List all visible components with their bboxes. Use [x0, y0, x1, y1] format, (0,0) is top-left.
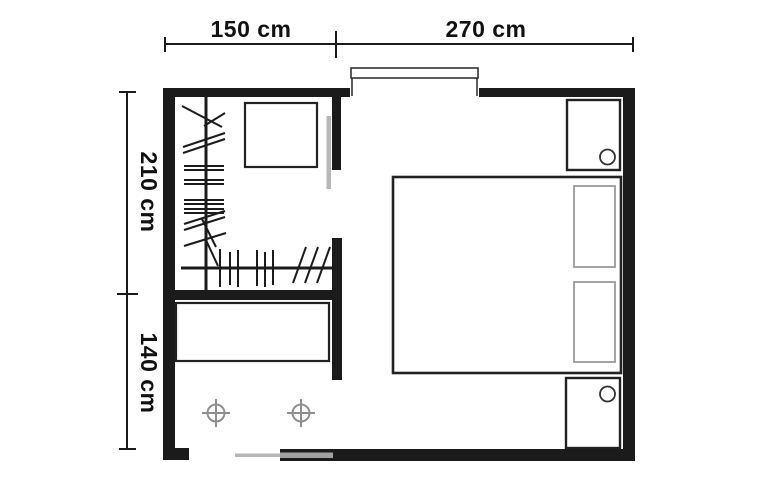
dimension-top: 150 cm 270 cm — [165, 16, 633, 58]
dimension-left: 210 cm 140 cm — [117, 92, 162, 449]
wall-closet-bottom — [175, 290, 342, 300]
dimension-label-270: 270 cm — [445, 16, 526, 42]
entry-door-pocket — [280, 453, 333, 459]
ceiling-light-icon — [202, 399, 230, 427]
hanger-marks-vertical-rail — [182, 106, 226, 266]
ceiling-lights — [202, 399, 315, 427]
walk-in-closet — [181, 97, 332, 290]
nightstand-top — [567, 100, 620, 170]
window-sill — [351, 68, 478, 78]
wall-left-foot — [163, 448, 189, 460]
pillow-top — [574, 186, 615, 267]
wall-left — [163, 88, 175, 448]
dimension-label-210: 210 cm — [136, 151, 162, 232]
wall-top-left — [163, 88, 351, 97]
lamp-top-icon — [600, 150, 615, 165]
wardrobe-box — [245, 103, 317, 167]
entry-door-leaf — [235, 454, 280, 458]
floor-plan-canvas: 150 cm 270 cm 210 cm 140 cm — [0, 0, 759, 500]
wall-closet-partition-lower — [332, 238, 342, 380]
dimension-label-140: 140 cm — [136, 332, 162, 413]
entry-sliding-door — [235, 453, 333, 459]
nightstand-bottom — [566, 378, 620, 448]
window — [350, 67, 479, 97]
wall-top-right — [478, 88, 635, 97]
floor-plan: 150 cm 270 cm 210 cm 140 cm — [0, 0, 759, 500]
wall-closet-partition-upper — [332, 97, 341, 170]
dimension-label-150: 150 cm — [210, 16, 291, 42]
ceiling-light-icon — [287, 399, 315, 427]
closet-sliding-door — [327, 116, 332, 189]
double-bed — [393, 177, 621, 373]
lamp-bottom-icon — [600, 387, 615, 402]
wall-right — [623, 88, 635, 461]
pillow-bottom — [574, 282, 615, 362]
dresser — [176, 303, 329, 361]
wall-bottom — [280, 449, 635, 461]
